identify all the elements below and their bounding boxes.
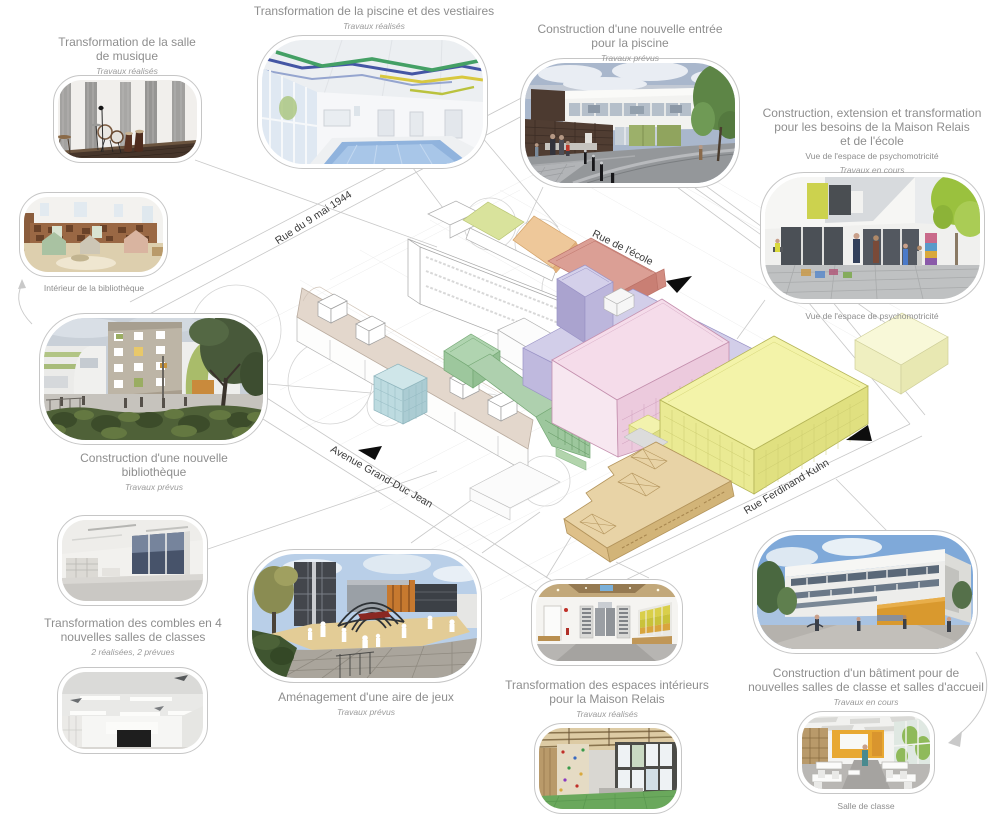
svg-text:Rue du 9 mai 1944: Rue du 9 mai 1944	[273, 189, 354, 247]
